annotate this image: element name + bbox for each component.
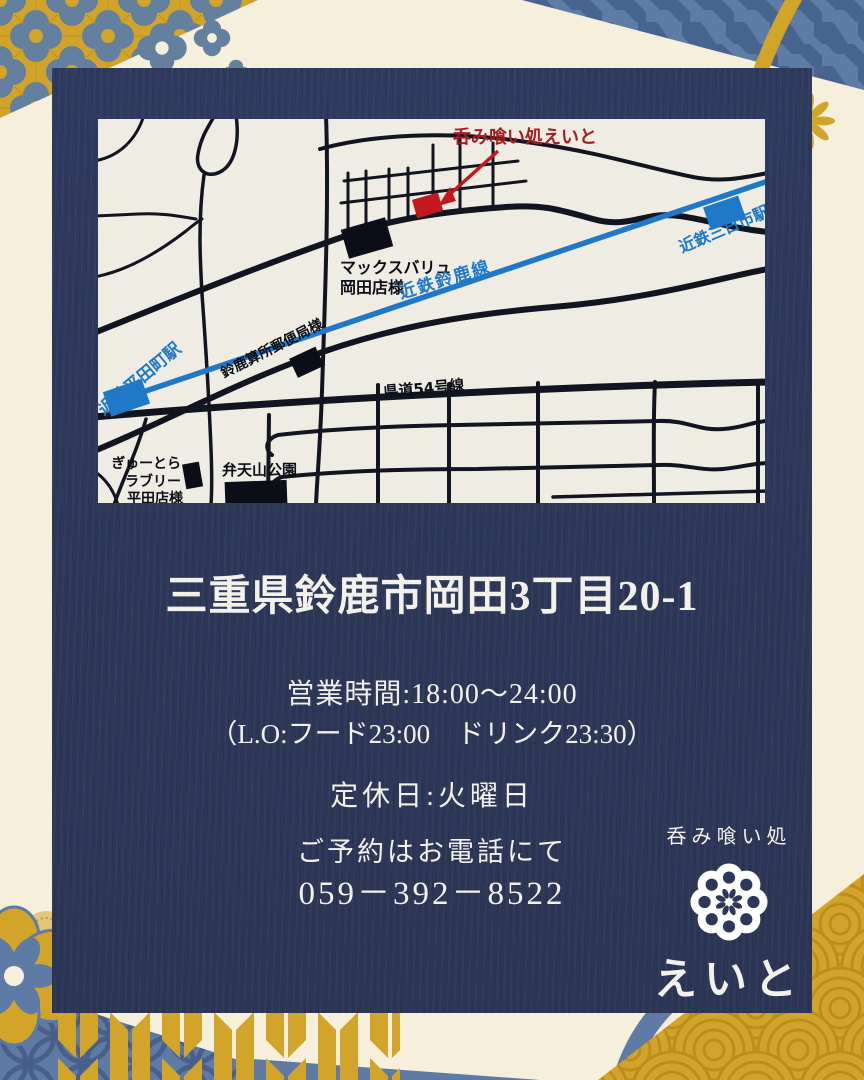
info-card: 呑み喰い処えいと マックスバリュ 岡田店様 近鉄鈴鹿線 近鉄平田町駅 近鉄三日市… (52, 68, 812, 1013)
logo-name: えいと (646, 945, 812, 1007)
pattern-yagasuri-bottom (56, 1012, 400, 1080)
gyutora-label-2: ラブリー (125, 473, 181, 490)
logo-tagline: 呑み喰い処 (646, 820, 812, 849)
address: 三重県鈴鹿市岡田3丁目20-1 (52, 562, 812, 623)
logo: 呑み喰い処 (646, 820, 812, 1007)
store-label-2: 岡田店様 (340, 278, 405, 297)
gyutora-label-1: ぎゅーとら (111, 455, 181, 472)
hours-line1: 営業時間:18:00〜24:00 (52, 672, 812, 712)
park-label: 弁天山公園 (222, 461, 297, 479)
flyer: 呑み喰い処えいと マックスバリュ 岡田店様 近鉄鈴鹿線 近鉄平田町駅 近鉄三日市… (0, 0, 864, 1080)
map-marker-label: 呑み喰い処えいと (452, 126, 597, 148)
park-marker (225, 480, 288, 503)
closed-day: 定休日:火曜日 (52, 774, 812, 814)
access-map: 呑み喰い処えいと マックスバリュ 岡田店様 近鉄鈴鹿線 近鉄平田町駅 近鉄三日市… (98, 119, 765, 503)
gyutora-label-3: 平田店様 (127, 490, 184, 503)
hours-line2: （L.O:フード23:00 ドリンク23:30） (52, 712, 812, 751)
flower-crest-icon (682, 855, 776, 949)
